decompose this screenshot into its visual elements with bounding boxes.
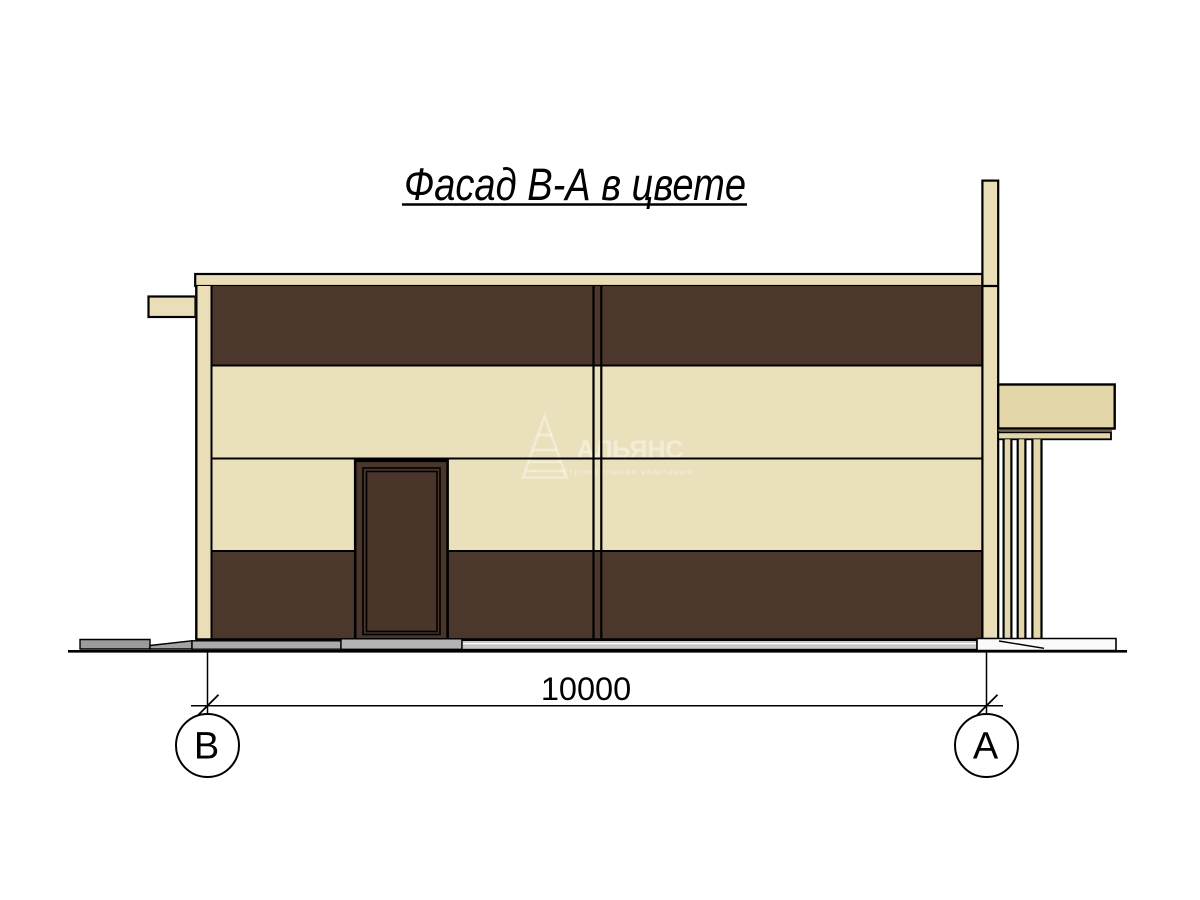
svg-text:А: А (973, 726, 999, 768)
svg-text:Фасад В-А в цвете: Фасад В-А в цвете (404, 159, 746, 210)
svg-text:строительная компания: строительная компания (563, 467, 693, 478)
svg-text:10000: 10000 (541, 671, 631, 707)
svg-text:В: В (194, 726, 219, 768)
